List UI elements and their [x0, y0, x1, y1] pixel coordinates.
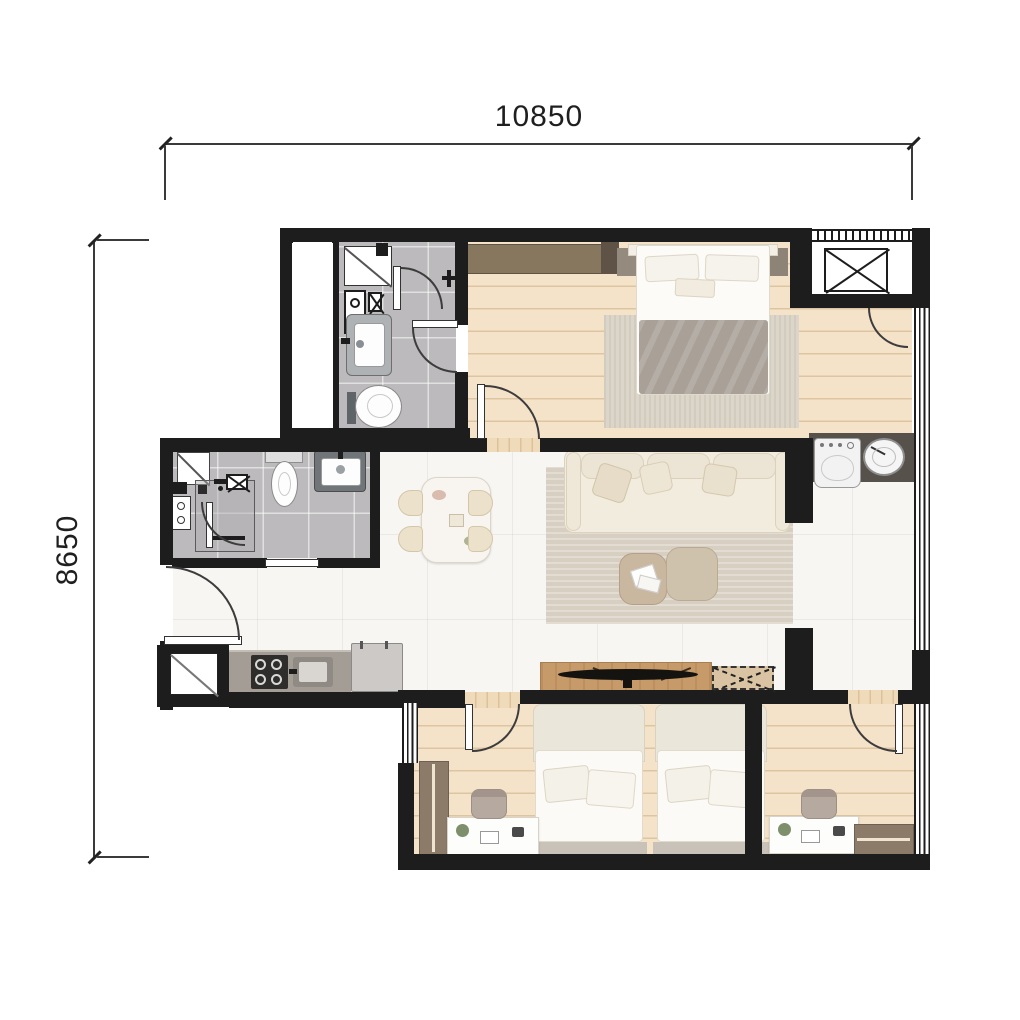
- wall-between-bedrooms: [745, 700, 762, 856]
- burner-icon: [255, 659, 266, 670]
- master-door-leaf: [477, 384, 485, 439]
- floor-plan: 10850 8650: [0, 0, 1020, 1020]
- basin-bowl: [872, 447, 896, 467]
- sofa-armrest: [566, 452, 581, 531]
- bathroom-1-inner-door-leaf: [393, 266, 401, 310]
- floor-drain-icon: [198, 485, 207, 494]
- table-centerpiece: [449, 514, 464, 527]
- wall-laundry-stub: [785, 438, 813, 523]
- valve-x-symbol: [226, 474, 248, 490]
- laptop-icon: [480, 831, 499, 844]
- washer-control-icon: [838, 443, 842, 447]
- service-shaft-top: [292, 243, 333, 428]
- bathroom-2-toilet: [271, 461, 298, 507]
- burner-icon: [271, 674, 282, 685]
- wall-bathroom-2-right: [370, 452, 380, 566]
- wall-outer-left-upper: [160, 438, 173, 565]
- tv-stand: [623, 680, 632, 688]
- sofa: [564, 449, 791, 533]
- bedroom-3-chair: [801, 789, 837, 819]
- shower-mixer-bar-icon: [442, 276, 456, 280]
- dimension-line-left: [93, 240, 95, 858]
- master-wardrobe: [467, 244, 619, 274]
- dining-chair: [468, 490, 493, 516]
- dimension-extension-line: [97, 856, 149, 858]
- tv-console: [540, 662, 712, 692]
- pillow: [705, 254, 760, 282]
- washing-machine: [814, 438, 861, 488]
- chair-back: [802, 790, 836, 797]
- plant-icon: [456, 824, 469, 837]
- wall-master-bottom: [540, 438, 790, 452]
- shower-mixer-icon: [214, 479, 226, 484]
- fridge-handle-icon: [385, 641, 388, 649]
- meter-dial-icon: [177, 502, 185, 510]
- wardrobe-rail: [857, 838, 910, 841]
- meter-box-icon: [172, 496, 191, 530]
- dining-chair: [468, 526, 493, 552]
- shower-head-icon: [218, 486, 223, 491]
- cushion: [675, 278, 716, 298]
- kitchen-sink: [293, 657, 333, 687]
- bathroom-1-toilet: [355, 385, 402, 428]
- wall-bedroom-2-left: [398, 763, 414, 856]
- bedroom-2-chair: [471, 789, 507, 819]
- wardrobe-rail: [432, 764, 435, 852]
- wall-bathroom-1-right-upper: [455, 242, 468, 325]
- magazine: [637, 575, 662, 594]
- desk-lamp-icon: [512, 827, 524, 837]
- heater-knob-icon: [350, 298, 360, 308]
- desk-lamp-icon: [833, 826, 845, 836]
- bathroom-2-sliding-door: [265, 559, 319, 567]
- laptop-icon: [801, 830, 820, 843]
- dimension-extension-line: [164, 146, 166, 200]
- wall-shaft-divider: [332, 242, 339, 428]
- washer-dial-icon: [847, 442, 854, 449]
- dimension-extension-line: [911, 146, 913, 200]
- bathroom-2-sink: [314, 450, 366, 492]
- dimension-extension-line: [97, 239, 149, 241]
- washer-drum-icon: [821, 455, 854, 481]
- valve-x-symbol: [368, 292, 382, 312]
- plant-icon: [778, 823, 791, 836]
- wall-ledge-bottom: [798, 294, 930, 308]
- pillow: [586, 769, 637, 809]
- window-left-bedroom-2: [402, 703, 418, 763]
- bedroom-2-desk: [447, 817, 539, 855]
- washer-control-icon: [820, 443, 824, 447]
- sink-drain-icon: [356, 340, 364, 348]
- dimension-width-label: 10850: [439, 100, 639, 134]
- wall-column: [376, 243, 388, 256]
- dining-chair: [398, 526, 423, 552]
- bedroom-3-desk: [769, 816, 859, 854]
- table-decor-flower: [432, 490, 446, 500]
- blanket: [639, 320, 768, 394]
- master-door-threshold: [487, 438, 540, 452]
- bathroom-1-sink: [346, 314, 392, 376]
- cooktop-icon: [251, 655, 288, 689]
- sink-drain-icon: [336, 465, 345, 474]
- wall-right-corner: [912, 650, 930, 704]
- wall-top: [280, 228, 810, 242]
- burner-icon: [255, 674, 266, 685]
- bedroom-2-bed: [535, 750, 643, 842]
- window-right-master-living: [914, 308, 930, 650]
- sink-faucet-icon: [289, 669, 297, 674]
- wall-mid-horizontal: [160, 438, 487, 452]
- bathroom-1-door-leaf: [412, 320, 458, 328]
- laundry-basin: [863, 438, 905, 476]
- ottoman: [666, 547, 718, 601]
- pillow: [664, 765, 713, 804]
- throw-pillow: [638, 460, 674, 496]
- future-unit-dashed-x-box: [712, 666, 774, 690]
- sink-faucet-icon: [341, 338, 350, 344]
- condenser-unit-x-symbol: [824, 248, 888, 292]
- refrigerator: [351, 643, 403, 692]
- louver-grille-icon: [810, 229, 912, 242]
- service-shaft-entry: [170, 653, 218, 695]
- meter-dial-icon: [177, 516, 185, 524]
- bedroom-3-wardrobe: [854, 824, 914, 855]
- washer-control-icon: [829, 443, 833, 447]
- tv: [558, 669, 698, 680]
- dining-chair: [398, 490, 423, 516]
- wall-bathroom-2-bottom-left: [172, 558, 267, 568]
- ottoman-with-magazines: [619, 553, 667, 605]
- burner-icon: [271, 659, 282, 670]
- bedroom-3-door-threshold: [848, 690, 898, 704]
- chair-back: [472, 790, 506, 797]
- bedroom-2-wardrobe: [419, 761, 449, 856]
- sink-basin: [299, 662, 327, 682]
- throw-pillow: [701, 463, 738, 498]
- toilet-bowl: [278, 472, 291, 496]
- wall-bathroom-2-bottom-right: [317, 558, 380, 568]
- shaft-fold-line: [171, 654, 219, 697]
- wall-living-corner-stub: [785, 628, 813, 704]
- window-right-bedroom-3: [914, 704, 930, 854]
- wall-under-bathroom-1: [280, 428, 470, 438]
- wall-bathroom-2-stub: [160, 482, 187, 494]
- toilet-bowl: [367, 394, 393, 418]
- wall-bedroom-2-left-top: [398, 690, 414, 703]
- wall-bottom: [398, 854, 930, 870]
- dimension-height-label: 8650: [51, 450, 85, 650]
- master-bed: [636, 245, 770, 395]
- pillow: [542, 765, 591, 804]
- fridge-handle-icon: [360, 641, 363, 649]
- dimension-line-top: [165, 143, 913, 145]
